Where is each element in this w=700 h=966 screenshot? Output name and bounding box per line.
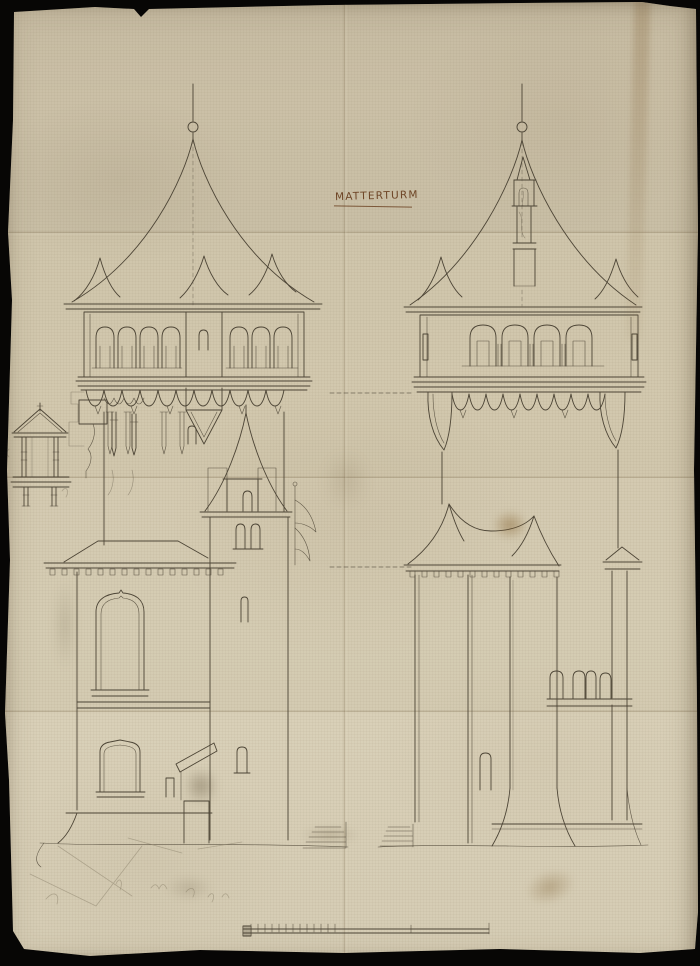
right-steps [380, 824, 413, 847]
right-annex-building [404, 504, 642, 846]
margin-detail-sketches [3, 398, 144, 506]
left-center-horn [180, 256, 228, 298]
pier-base-flare [492, 788, 575, 846]
left-corbel-frieze [86, 390, 284, 406]
shaft-slit-window [188, 426, 196, 444]
drawing-title: MATTERTURM [335, 189, 419, 203]
right-corner-horn-right [595, 259, 638, 299]
fore-tower-body [210, 517, 288, 840]
turret-cone [186, 410, 222, 444]
left-corner-horn-left [74, 258, 120, 301]
right-ground [378, 824, 648, 847]
left-elevation-front-view [37, 84, 348, 867]
scale-ticks [251, 924, 335, 932]
left-cornice [76, 377, 312, 390]
right-wing [547, 547, 642, 845]
left-roof-edge-left [72, 139, 193, 302]
roof-lantern [512, 157, 537, 286]
annex-dentils [50, 569, 223, 575]
construction-lines [193, 140, 522, 567]
left-roof-edge-right [193, 139, 314, 302]
left-tower-shaft [104, 412, 284, 545]
fore-tower [200, 405, 316, 840]
annex-ridge [449, 504, 534, 531]
banner-pennant [295, 500, 316, 561]
fore-tower-window-pair [233, 524, 263, 549]
annex-horn-right [512, 516, 559, 566]
right-gallery [412, 315, 646, 450]
left-ball-finial [188, 122, 198, 132]
right-corner-horn-left [418, 257, 462, 300]
right-roof-eave [404, 307, 642, 312]
left-ground [37, 822, 348, 867]
annex-posts [415, 575, 468, 843]
annex-lower-window [100, 740, 140, 792]
annex-plinth [58, 813, 212, 843]
tower-elevation-drawing [0, 0, 700, 966]
annex-roof [64, 541, 208, 562]
fore-tower-roof [205, 413, 287, 511]
right-annex-eave [404, 565, 561, 571]
archive-photo-backdrop: MATTERTURM [0, 0, 700, 966]
wing-roof [603, 547, 642, 569]
gallery-turret-shaft [186, 312, 222, 410]
annex-eave [44, 563, 236, 568]
fore-tower-eave [200, 512, 292, 517]
string-course [77, 702, 210, 708]
steps [303, 822, 346, 848]
margin-x-mark [3, 449, 9, 457]
dormer-window [243, 491, 252, 511]
right-roof-edges [410, 140, 636, 305]
right-ball-finial [517, 122, 527, 132]
door-canopy [176, 743, 217, 772]
right-corbel-frieze [452, 394, 605, 410]
wing-window-1 [550, 671, 563, 699]
left-corner-horn-right [249, 254, 296, 295]
right-cornice [412, 377, 646, 392]
turret-window [199, 330, 208, 350]
corner-pendant-left [428, 392, 452, 450]
wing-window-3 [600, 673, 611, 699]
machicolation-pendants [106, 412, 186, 454]
right-annex-dentils [410, 571, 559, 577]
left-annex-building [44, 541, 236, 843]
fore-tower-dormer [223, 479, 262, 511]
entrance-door [184, 801, 209, 843]
wing-ledge [547, 699, 632, 706]
left-gallery [69, 312, 312, 454]
right-tower-shaft [442, 450, 618, 548]
scale-bar [243, 923, 489, 936]
wing-window-2 [573, 671, 596, 699]
annex-slit-window [480, 753, 491, 790]
drawing-sheet: MATTERTURM [0, 0, 700, 966]
